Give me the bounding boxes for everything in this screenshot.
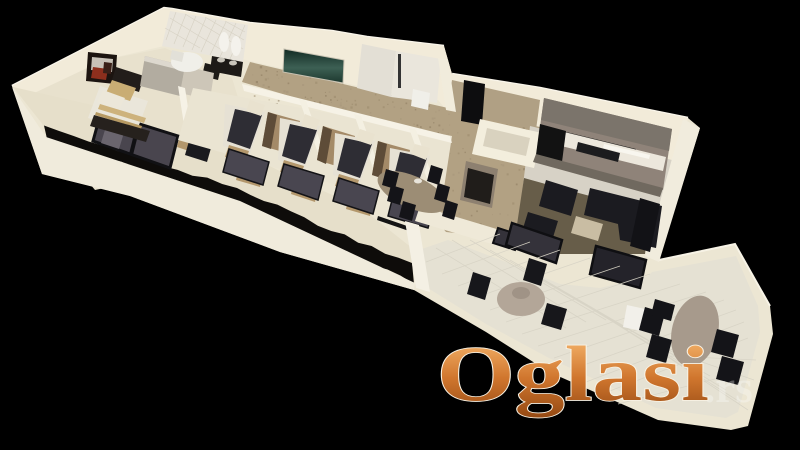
svg-text:Oglasi: Oglasi [437,331,709,417]
svg-text:.rs: .rs [704,362,753,412]
